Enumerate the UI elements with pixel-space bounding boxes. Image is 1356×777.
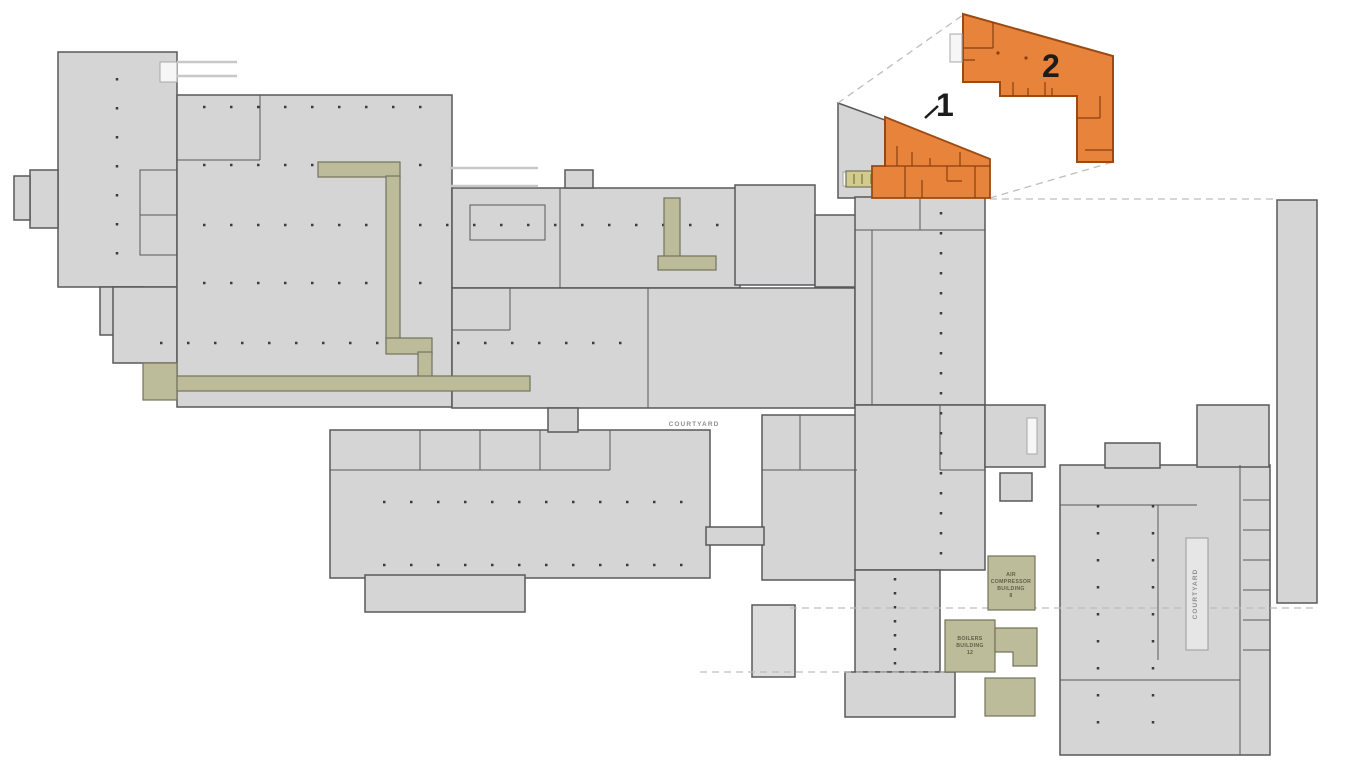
building-southeast-top-right — [1197, 405, 1269, 467]
building-mid-upper-bump — [565, 170, 593, 188]
building-lower-center-south — [365, 575, 525, 612]
boilers-label-line2: BUILDING — [956, 643, 983, 649]
boilers-building-extension — [995, 628, 1037, 666]
air-compressor-label-line1: AIR — [1006, 572, 1016, 578]
olive-corridor-center-v — [664, 198, 680, 258]
air-compressor-label-line3: BUILDING — [997, 586, 1024, 592]
air-compressor-label-line4: 8 — [1009, 593, 1012, 599]
olive-building-south — [985, 678, 1035, 716]
building-southeast-block — [1060, 465, 1270, 755]
building-center-north-block — [735, 185, 815, 285]
air-compressor-label-line2: COMPRESSOR — [991, 579, 1031, 585]
building-courtyard-east-block — [762, 415, 857, 580]
olive-room-west — [143, 363, 177, 400]
floor-plan-canvas: COURTYARD COURTYARD AIR COMPRESSOR BUILD… — [0, 0, 1356, 777]
highlight-area-1[interactable] — [872, 117, 990, 198]
building-small-south-block — [752, 605, 795, 677]
courtyard-right-label: COURTYARD — [1192, 569, 1199, 620]
building-bridge-south — [706, 527, 764, 545]
building-northwest-step2 — [113, 287, 177, 363]
olive-corridor-long — [177, 376, 530, 391]
boilers-label-line3: 12 — [967, 650, 973, 656]
building-main-west-block — [177, 95, 452, 407]
boilers-label-line1: BOILERS — [957, 636, 982, 642]
building-bridge-east — [548, 408, 578, 432]
highlight-area-2-door — [950, 34, 962, 62]
building-northwest-annex-small — [14, 176, 30, 220]
area2-number-label: 2 — [1042, 48, 1060, 84]
olive-corridor-arm-top — [318, 162, 400, 177]
highlight-area-1-outline[interactable] — [872, 117, 990, 198]
building-spine-east-rooms2 — [1000, 473, 1032, 501]
olive-corridor-center-h — [658, 256, 716, 270]
building-mid-upper-block — [452, 188, 740, 288]
opening-northwest — [160, 62, 177, 82]
floor-plan-svg: COURTYARD COURTYARD AIR COMPRESSOR BUILD… — [0, 0, 1356, 777]
building-spine-low — [855, 570, 940, 672]
building-far-east-strip — [1277, 200, 1317, 603]
building-spine-base — [845, 672, 955, 717]
zoom-projection-line-bottom — [990, 162, 1113, 198]
building-southeast-top-step — [1105, 443, 1160, 468]
highlight-area-2-outline[interactable] — [963, 14, 1113, 162]
opening-spine-slot — [1027, 418, 1037, 454]
building-northwest-annex — [30, 170, 58, 228]
courtyard-main-label: COURTYARD — [669, 421, 720, 428]
building-lower-center-block — [330, 430, 710, 578]
building-spine-mid — [855, 405, 985, 570]
building-center-north-block2 — [815, 215, 860, 287]
gray-building-masses — [14, 52, 1317, 755]
highlight-area-2[interactable] — [950, 14, 1113, 162]
area1-number-label: 1 — [936, 87, 954, 123]
olive-corridor-vertical — [386, 176, 400, 344]
